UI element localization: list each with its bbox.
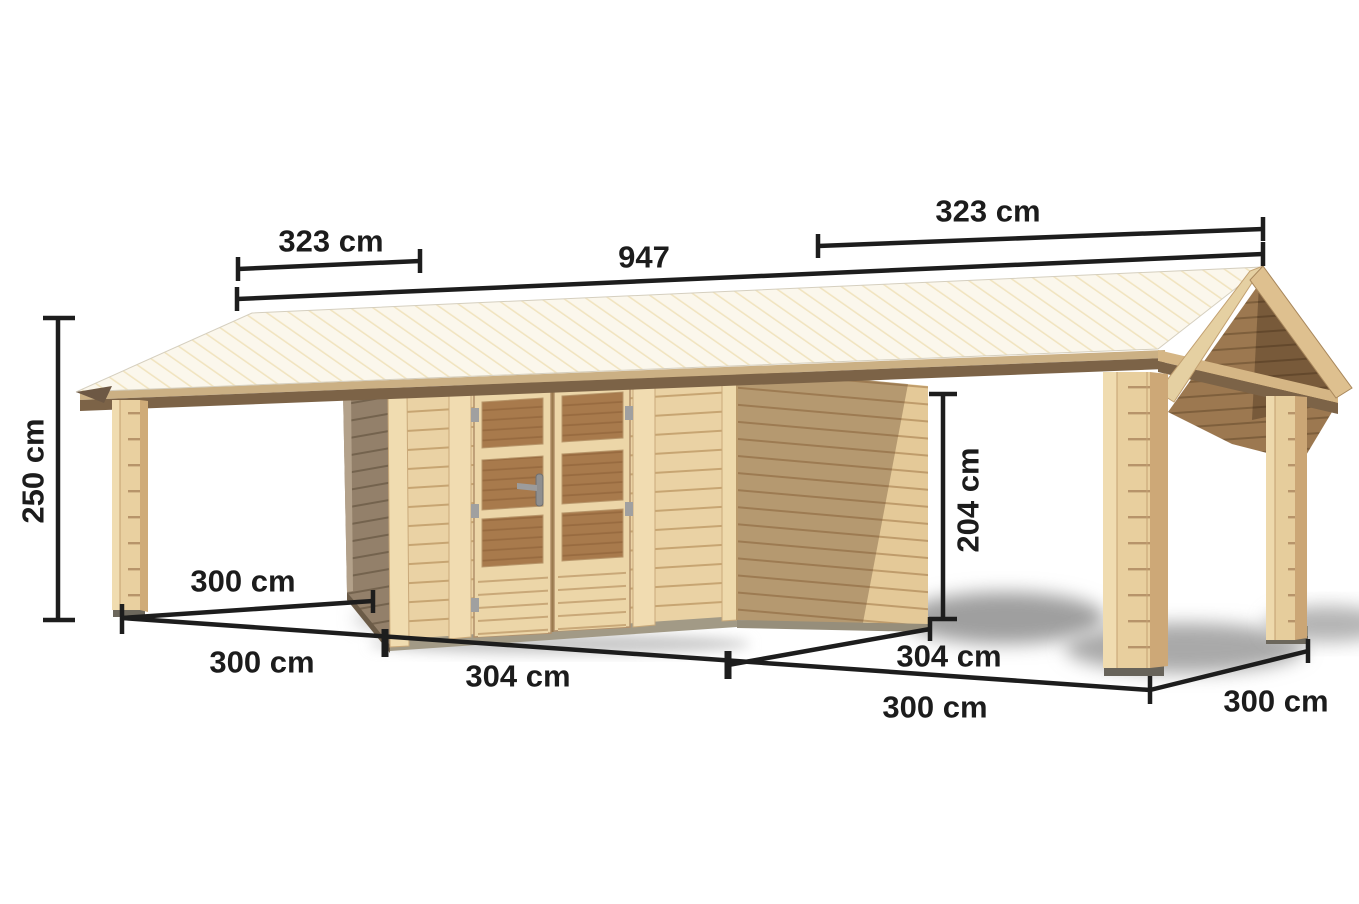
shed-right-wall xyxy=(737,368,928,632)
door-trim-right xyxy=(633,376,655,627)
dim-label-shed-depth: 304 cm xyxy=(896,641,1001,672)
corner-trim-right xyxy=(722,368,737,621)
dim-label-right-carport-width: 300 cm xyxy=(882,692,987,723)
right-front-post xyxy=(1103,372,1168,676)
dim-label-shed-front-width: 304 cm xyxy=(465,661,570,692)
dim-label-left-carport-width: 300 cm xyxy=(209,647,314,678)
dim-label-roof-total-span: 947 xyxy=(618,242,670,273)
shed-left-wall xyxy=(343,383,390,653)
dim-label-left-carport-depth: 300 cm xyxy=(190,566,295,597)
dim-label-outer-height: 250 cm xyxy=(18,418,49,523)
dim-label-roof-left-span: 323 cm xyxy=(278,226,383,257)
shed-carport-drawing xyxy=(0,0,1359,904)
dim-label-clearance-height: 204 cm xyxy=(953,447,984,552)
dim-label-right-carport-depth: 300 cm xyxy=(1223,686,1328,717)
right-rear-post xyxy=(1266,396,1308,644)
shed-double-door xyxy=(449,376,655,639)
door-trim-left xyxy=(449,389,471,639)
left-front-post xyxy=(112,400,148,617)
dim-label-roof-right-span: 323 cm xyxy=(935,196,1040,227)
product-illustration: 323 cm 947 323 cm 250 cm 204 cm 300 cm 3… xyxy=(0,0,1359,904)
corner-trim-left xyxy=(388,389,409,647)
